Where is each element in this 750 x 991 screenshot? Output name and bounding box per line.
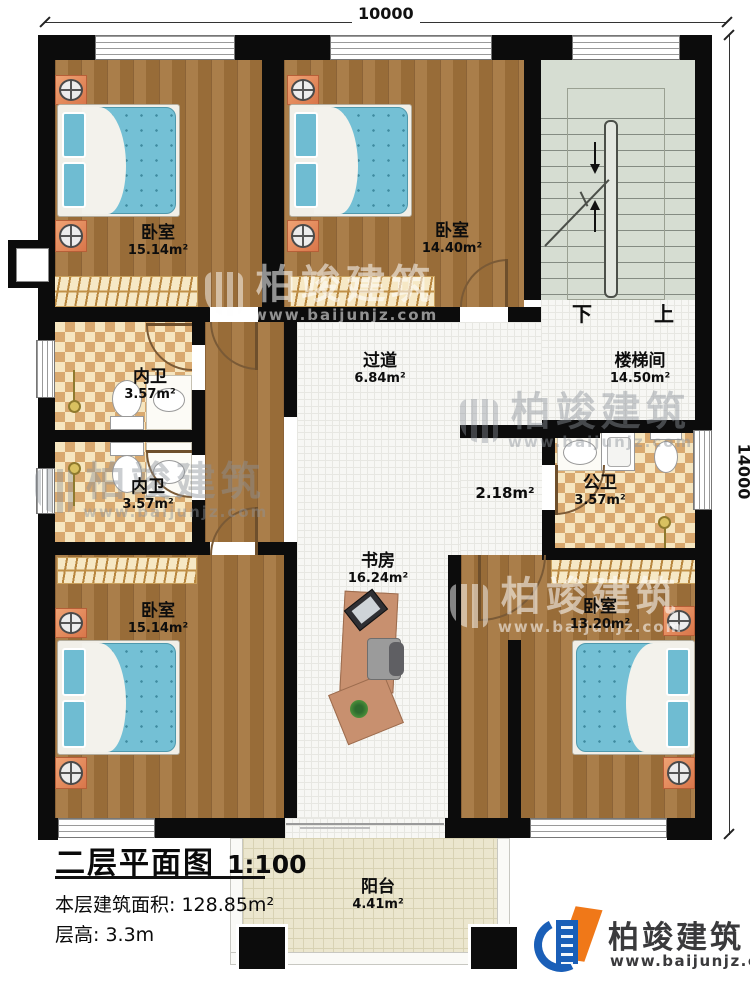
nightstand: [55, 75, 87, 105]
wall-bottom-1: [155, 818, 285, 838]
wall-top-2: [235, 35, 330, 60]
door-leaf-bedroom-tm: [505, 259, 508, 307]
titleblock-underline: [55, 876, 265, 879]
room-area: 3.57m²: [80, 387, 220, 402]
wardrobe-bedroom-tm: [290, 276, 435, 307]
wall-bed-tm-south-1: [284, 307, 460, 322]
window-left-bath-bottom: [36, 468, 55, 514]
stair-up-label: 上: [654, 298, 674, 327]
nightstand-lamp-icon: [291, 224, 315, 248]
floor-area-value: 128.85m²: [181, 894, 274, 916]
room-name: 阳台: [308, 878, 448, 897]
nightstand: [287, 220, 319, 252]
company-name: 柏竣建筑: [608, 912, 744, 957]
wall-bath-public-south: [542, 548, 712, 560]
company-logo-building-blue: [556, 920, 578, 964]
wall-bed-tm-south-2: [508, 307, 541, 322]
nightstand: [55, 757, 87, 789]
wall-top-1: [38, 35, 95, 60]
wall-bath-public-north: [555, 420, 697, 433]
label-corridor: 过道 6.84m²: [310, 352, 450, 386]
window-top-bedroom-tl: [95, 35, 235, 60]
bed-bl-cushion-1: [62, 648, 86, 696]
wall-bottom-2: [445, 818, 530, 838]
wall-top-4: [680, 35, 712, 60]
wardrobe-bedroom-bl: [57, 557, 197, 584]
room-name: 卧室: [382, 222, 522, 241]
bed-br-cushion-1: [666, 648, 690, 696]
room-name: 卧室: [88, 602, 228, 621]
door-leaf-bedroom-bl: [255, 507, 258, 555]
bath-top-toilet-tank: [110, 416, 144, 430]
nightstand-lamp-icon: [59, 79, 83, 101]
bath-public-sink: [563, 440, 597, 465]
stair-railing: [604, 120, 618, 298]
stair-arrow-down-head: [590, 200, 600, 210]
stair-arrow-down-stem: [594, 208, 596, 232]
stair-down-label: 下: [572, 298, 592, 327]
wall-bottom-corner-right: [667, 818, 712, 840]
label-bedroom-tl: 卧室 15.14m²: [88, 224, 228, 258]
room-name: 内卫: [80, 368, 220, 387]
nightstand: [663, 757, 695, 789]
bath-bottom-toilet-tank: [110, 442, 144, 456]
nightstand-lamp-icon: [59, 224, 83, 248]
room-area: 6.84m²: [310, 371, 450, 386]
room-name: 过道: [310, 352, 450, 371]
wall-h4-1: [38, 542, 210, 555]
door-leaf-bath-top: [146, 323, 192, 326]
nightstand-lamp-icon: [291, 79, 315, 101]
floorplan-canvas: 下 上: [0, 0, 750, 991]
wall-study-east: [448, 555, 461, 818]
nightstand-lamp-icon: [59, 761, 83, 785]
room-area: 4.41m²: [308, 897, 448, 912]
label-bedroom-br: 卧室 13.20m²: [530, 598, 670, 632]
wall-vestibule-east: [284, 322, 297, 417]
room-name: 卧室: [530, 598, 670, 617]
wall-bed-tl-south-2: [258, 307, 284, 322]
bed-tm-cushion-1: [294, 112, 318, 158]
bath-public-shower-inner: [607, 437, 631, 467]
bed-tl-cushion-1: [62, 112, 86, 158]
window-top-bedroom-tm: [330, 35, 492, 60]
label-study: 书房 16.24m²: [308, 552, 448, 586]
nightstand: [55, 608, 87, 638]
wall-bed-tl-south-1: [38, 307, 210, 322]
room-area: 2.18m²: [435, 484, 575, 503]
window-left-bath-top: [36, 340, 55, 398]
floor-height-value: 3.3m: [105, 924, 154, 946]
door-leaf-bedroom-br: [478, 555, 481, 621]
stair-arrow-up-head: [590, 164, 600, 174]
room-area: 13.20m²: [530, 617, 670, 632]
window-top-stairwell: [572, 35, 680, 60]
wall-bed-tl-tm: [262, 60, 284, 322]
bumpout-niche: [16, 248, 49, 282]
room-name: 书房: [308, 552, 448, 571]
room-name: 内卫: [78, 478, 218, 497]
balcony-column-left: [236, 924, 288, 972]
nightstand: [287, 75, 319, 105]
label-stairwell: 楼梯间 14.50m²: [570, 352, 710, 386]
floor-area-label: 本层建筑面积:: [55, 894, 175, 916]
nightstand-lamp-icon: [59, 612, 83, 634]
study-chair-back: [389, 642, 404, 676]
floor-height-label: 层高:: [55, 924, 99, 946]
bath-public-toilet-bowl: [654, 441, 678, 473]
label-bath-inner-top: 内卫 3.57m²: [80, 368, 220, 402]
floor-height-line: 层高: 3.3m: [55, 920, 154, 947]
wall-h4-2: [258, 542, 297, 555]
wall-bed-bl-east: [284, 555, 297, 818]
bed-tm-cushion-2: [294, 162, 318, 208]
label-bath-inner-bottom: 内卫 3.57m²: [78, 478, 218, 512]
bed-tl-cushion-2: [62, 162, 86, 208]
nightstand-lamp-icon: [667, 761, 691, 785]
room-area: 14.50m²: [570, 371, 710, 386]
wall-bath-public-west-1: [542, 420, 555, 465]
wall-bottom-corner-left: [38, 818, 58, 840]
room-area: 15.14m²: [88, 621, 228, 636]
window-bottom-bedroom-br: [530, 818, 667, 838]
room-area: 14.40m²: [382, 241, 522, 256]
nightstand: [55, 220, 87, 252]
door-leaf-bedroom-tl: [255, 322, 258, 370]
label-bedroom-bl: 卧室 15.14m²: [88, 602, 228, 636]
label-bedroom-tm: 卧室 14.40m²: [382, 222, 522, 256]
window-bottom-bedroom-bl: [58, 818, 155, 838]
wall-bath-divider: [55, 430, 192, 442]
wall-minihall-east: [508, 640, 521, 818]
dimension-right-value: 14000: [734, 442, 750, 502]
wardrobe-bedroom-br: [551, 557, 697, 584]
nightstand-lamp-icon: [667, 610, 691, 632]
wall-stair-west: [524, 35, 541, 300]
room-name: 楼梯间: [570, 352, 710, 371]
wall-bath-east-1: [192, 322, 205, 345]
dimension-top-value: 10000: [352, 4, 420, 23]
wall-left: [38, 60, 55, 818]
wardrobe-bedroom-tl: [50, 276, 198, 307]
room-area: 16.24m²: [308, 571, 448, 586]
room-area: 15.14m²: [88, 243, 228, 258]
company-website: www.baijunjz.com: [610, 952, 750, 970]
plant-icon: [350, 700, 368, 718]
dimension-line-right: [729, 35, 730, 835]
bed-br-cushion-2: [666, 700, 690, 748]
plan-scale: 1:100: [227, 850, 307, 879]
label-alcove: 2.18m²: [435, 484, 575, 503]
bed-bl-cushion-2: [62, 700, 86, 748]
label-balcony: 阳台 4.41m²: [308, 878, 448, 912]
window-right-bath-public: [693, 430, 712, 510]
shower-head-icon: [73, 370, 75, 402]
shower-head-icon: [73, 474, 75, 506]
room-area: 3.57m²: [78, 497, 218, 512]
balcony-slider-door: [286, 823, 444, 825]
balcony-slider-door-leaf: [300, 827, 370, 829]
room-name: 卧室: [88, 224, 228, 243]
floor-area-line: 本层建筑面积: 128.85m²: [55, 890, 274, 917]
balcony-column-right: [468, 924, 520, 972]
door-leaf-bath-bottom: [146, 450, 192, 453]
stair-arrow-up-stem: [594, 142, 596, 166]
